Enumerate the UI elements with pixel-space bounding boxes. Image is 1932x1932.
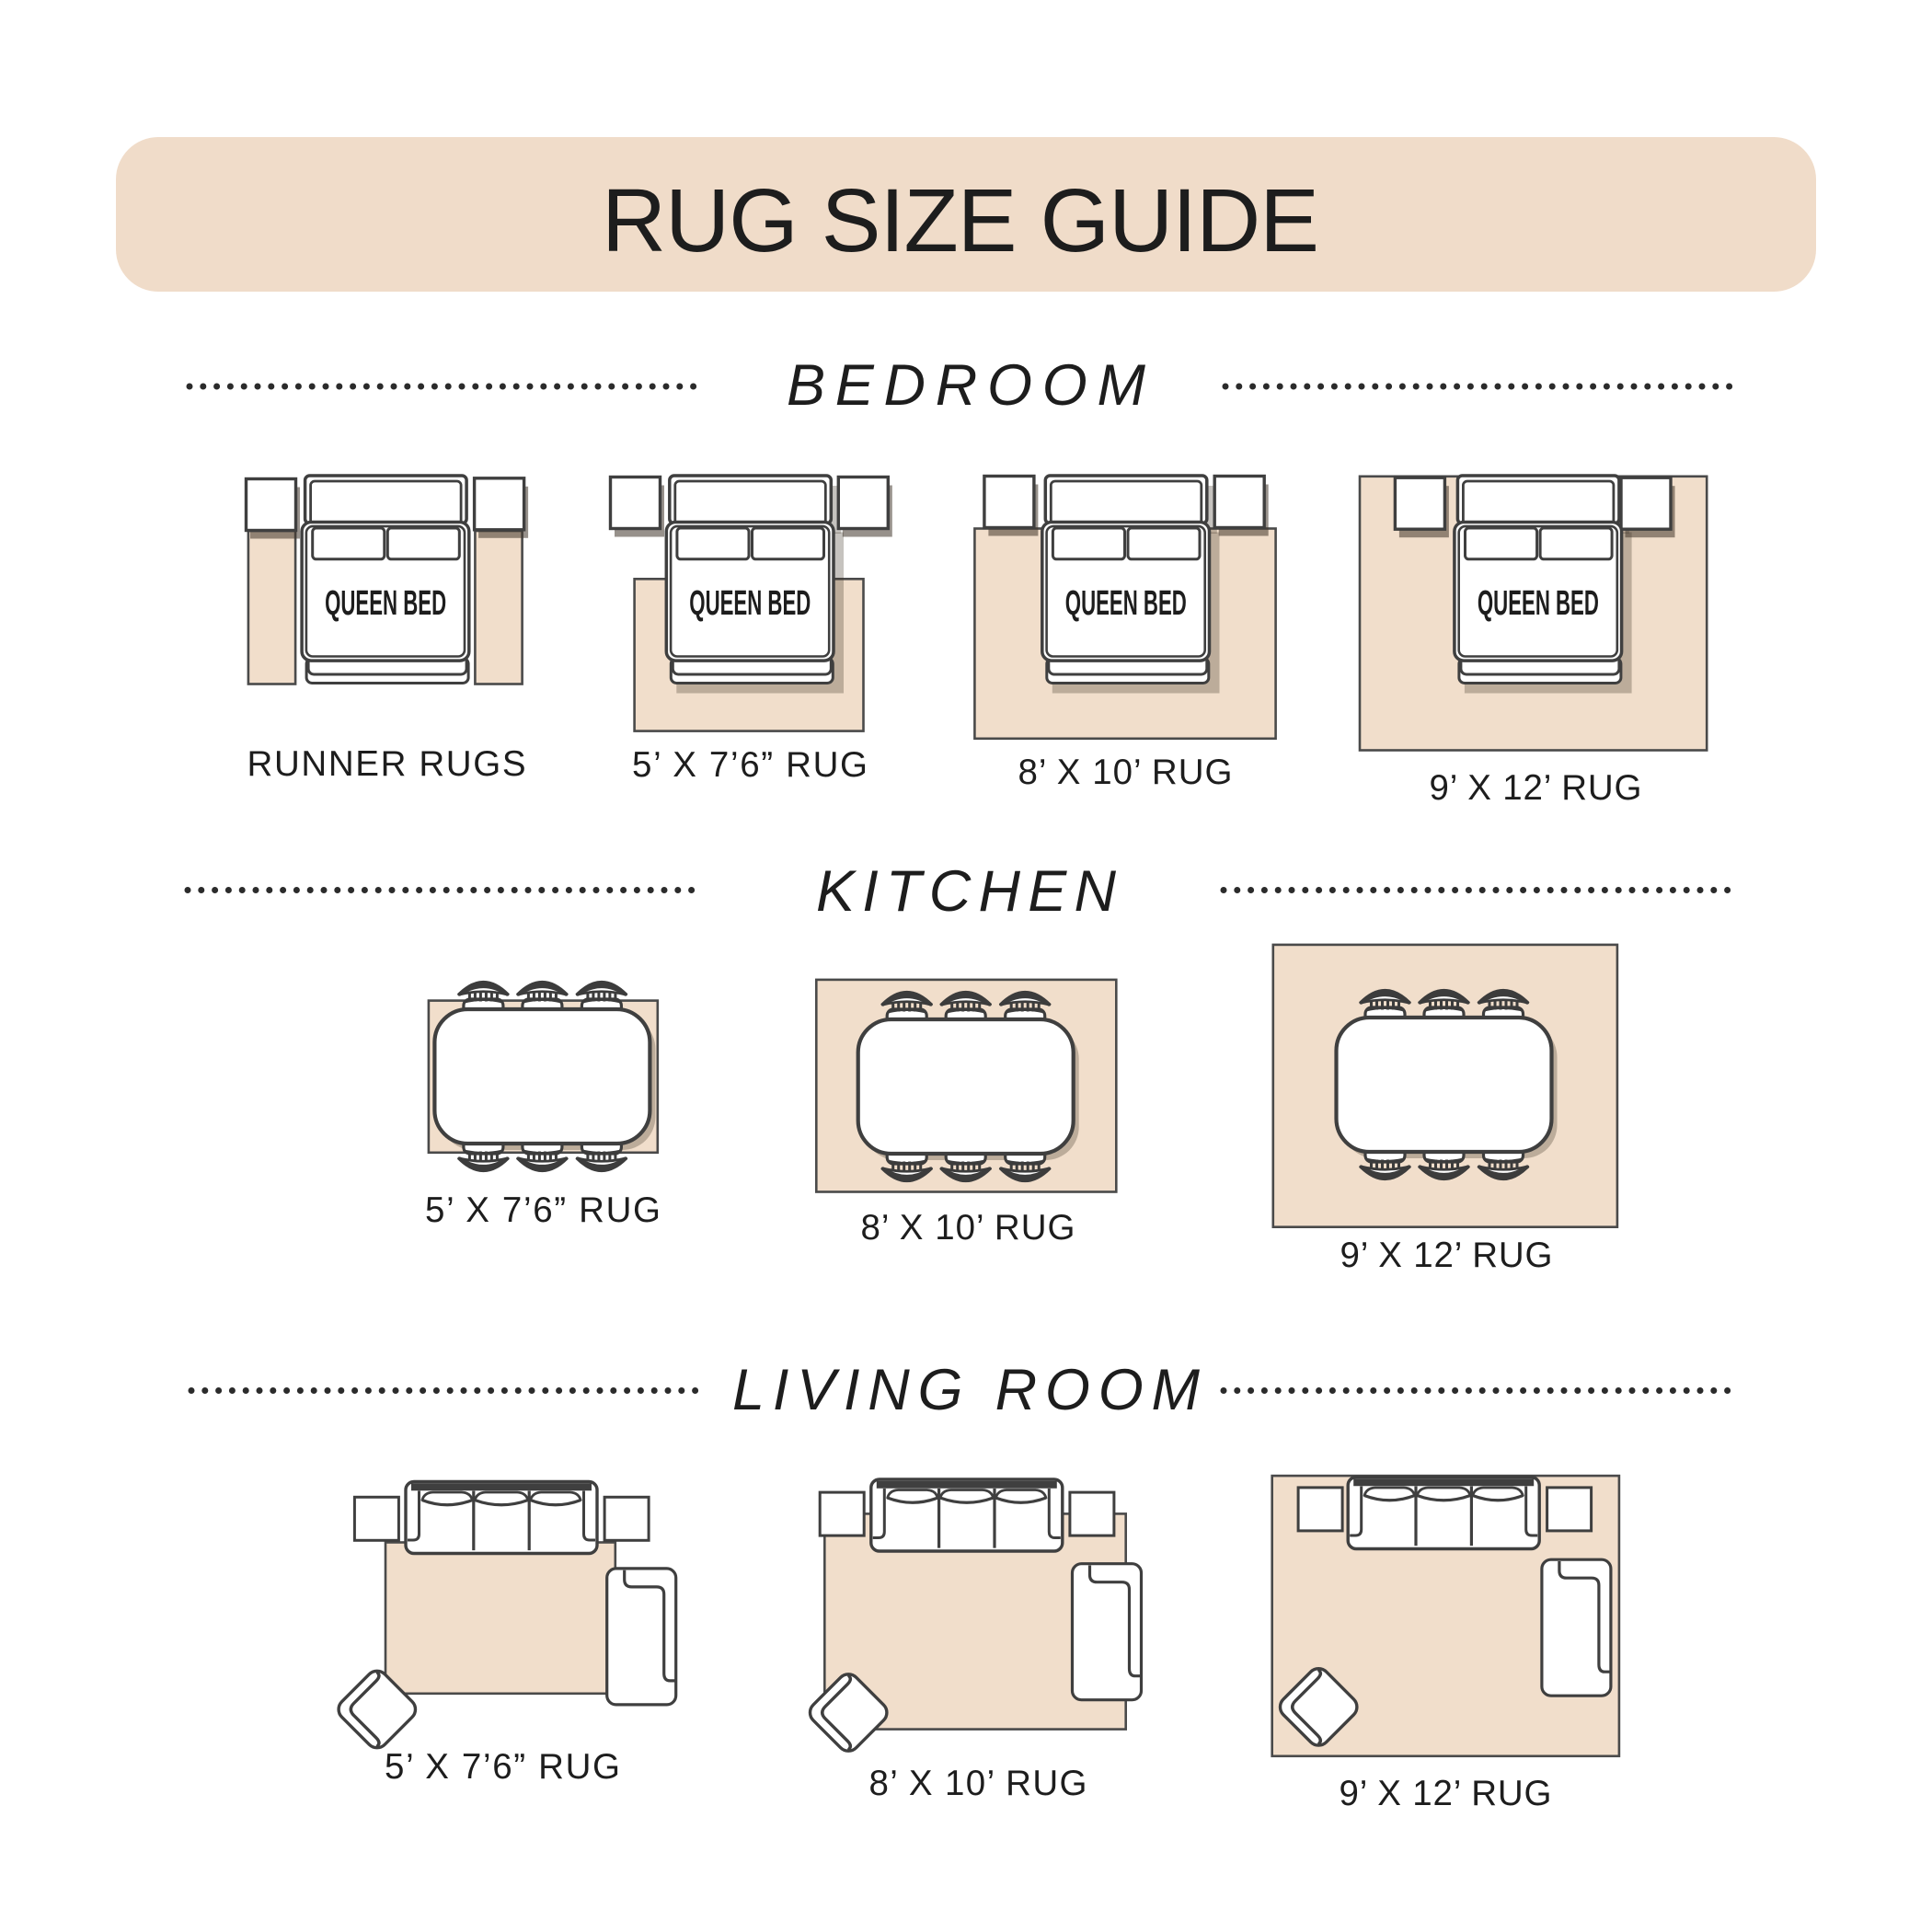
svg-text:RUNNER RUGS: RUNNER RUGS — [247, 744, 526, 784]
svg-text:RUG SIZE GUIDE: RUG SIZE GUIDE — [602, 170, 1319, 270]
svg-text:8’ X 10’ RUG: 8’ X 10’ RUG — [869, 1764, 1087, 1803]
svg-text:9’ X 12’ RUG: 9’ X 12’ RUG — [1340, 1774, 1552, 1813]
svg-text:8’ X 10’ RUG: 8’ X 10’ RUG — [1018, 753, 1233, 792]
svg-text:5’ X 7’6” RUG: 5’ X 7’6” RUG — [632, 745, 868, 785]
svg-text:9’ X 12’ RUG: 9’ X 12’ RUG — [1340, 1236, 1553, 1275]
svg-text:8’ X 10’ RUG: 8’ X 10’ RUG — [861, 1208, 1075, 1248]
svg-text:5’ X 7’6” RUG: 5’ X 7’6” RUG — [385, 1747, 620, 1787]
svg-text:5’ X 7’6” RUG: 5’ X 7’6” RUG — [425, 1190, 661, 1230]
svg-text:9’ X 12’ RUG: 9’ X 12’ RUG — [1430, 768, 1642, 808]
